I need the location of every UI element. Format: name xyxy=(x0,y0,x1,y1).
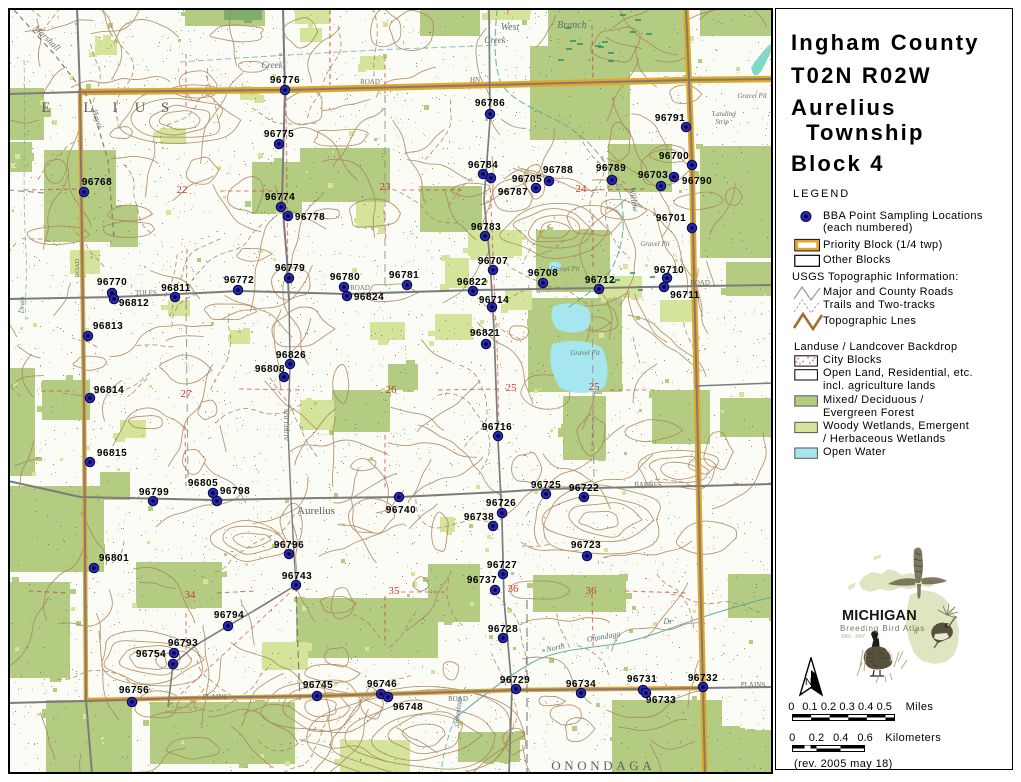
svg-text:G: G xyxy=(629,758,638,773)
svg-text:96791: 96791 xyxy=(655,113,685,124)
svg-text:Dr: Dr xyxy=(663,617,674,626)
svg-text:96778: 96778 xyxy=(295,212,325,223)
svg-text:96775: 96775 xyxy=(264,129,294,140)
svg-text:96770: 96770 xyxy=(97,277,127,288)
svg-text:96712: 96712 xyxy=(585,275,615,286)
svg-text:TOLES: TOLES xyxy=(135,289,157,297)
svg-text:96780: 96780 xyxy=(330,272,360,283)
svg-text:96783: 96783 xyxy=(471,222,501,233)
svg-text:BARNES: BARNES xyxy=(634,481,662,489)
svg-text:96748: 96748 xyxy=(393,702,423,713)
svg-text:96821: 96821 xyxy=(470,328,500,339)
svg-text:96822: 96822 xyxy=(457,277,487,288)
svg-text:96801: 96801 xyxy=(99,553,129,564)
svg-text:96813: 96813 xyxy=(93,321,123,332)
svg-text:96779: 96779 xyxy=(275,263,305,274)
svg-text:96754: 96754 xyxy=(136,649,166,660)
svg-text:N: N xyxy=(590,758,600,773)
svg-text:O: O xyxy=(577,758,586,773)
svg-text:96727: 96727 xyxy=(487,560,517,571)
svg-text:24: 24 xyxy=(576,183,588,195)
svg-text:96734: 96734 xyxy=(566,679,596,690)
svg-text:D: D xyxy=(603,758,612,773)
svg-text:96711: 96711 xyxy=(670,290,700,301)
svg-text:27: 27 xyxy=(181,388,193,400)
svg-text:PLAINS: PLAINS xyxy=(203,693,228,701)
svg-text:96745: 96745 xyxy=(303,680,333,691)
svg-text:HN: HN xyxy=(470,76,480,84)
svg-text:Creek: Creek xyxy=(261,60,283,70)
svg-text:96799: 96799 xyxy=(139,487,169,498)
svg-text:25: 25 xyxy=(589,381,601,393)
svg-text:N: N xyxy=(805,677,812,688)
svg-text:96707: 96707 xyxy=(478,256,508,267)
svg-text:96726: 96726 xyxy=(486,498,516,509)
svg-text:Drain: Drain xyxy=(18,296,27,314)
svg-text:96796: 96796 xyxy=(274,540,304,551)
svg-text:96805: 96805 xyxy=(188,478,218,489)
svg-text:Creek: Creek xyxy=(484,35,506,45)
svg-text:96793: 96793 xyxy=(168,638,198,649)
svg-text:96725: 96725 xyxy=(531,480,561,491)
svg-text:96746: 96746 xyxy=(367,679,397,690)
svg-text:96723: 96723 xyxy=(571,540,601,551)
svg-text:96776: 96776 xyxy=(270,75,300,86)
svg-text:Branch: Branch xyxy=(557,20,586,31)
svg-text:96772: 96772 xyxy=(224,275,254,286)
svg-text:ROAD: ROAD xyxy=(74,258,81,277)
svg-text:96728: 96728 xyxy=(488,624,518,635)
svg-text:96787: 96787 xyxy=(498,187,528,198)
svg-text:96786: 96786 xyxy=(475,98,505,109)
svg-text:ROAD: ROAD xyxy=(690,279,710,287)
svg-text:O: O xyxy=(551,758,560,773)
svg-text:96700: 96700 xyxy=(659,151,689,162)
svg-text:S: S xyxy=(161,100,169,116)
svg-text:II: II xyxy=(914,629,918,636)
svg-text:26: 26 xyxy=(386,384,398,396)
svg-text:36: 36 xyxy=(586,585,598,597)
svg-text:96722: 96722 xyxy=(569,483,599,494)
svg-text:96784: 96784 xyxy=(468,160,498,171)
svg-text:Landing: Landing xyxy=(711,110,736,118)
svg-text:96716: 96716 xyxy=(482,422,512,433)
svg-text:96732: 96732 xyxy=(688,673,718,684)
svg-text:23: 23 xyxy=(380,181,392,193)
svg-text:96737: 96737 xyxy=(467,575,497,586)
svg-text:Breeding Bird Atlas: Breeding Bird Atlas xyxy=(840,624,925,633)
svg-text:PLAINS: PLAINS xyxy=(741,681,766,689)
svg-text:Gravel Pit: Gravel Pit xyxy=(640,240,670,248)
svg-text:96733: 96733 xyxy=(646,695,676,706)
svg-text:E: E xyxy=(41,100,50,116)
svg-text:96774: 96774 xyxy=(265,192,295,203)
svg-text:96714: 96714 xyxy=(479,295,509,306)
svg-text:96812: 96812 xyxy=(119,298,149,309)
svg-text:N: N xyxy=(564,758,574,773)
svg-text:96768: 96768 xyxy=(82,177,112,188)
svg-text:36: 36 xyxy=(508,583,520,595)
svg-text:96756: 96756 xyxy=(119,685,149,696)
svg-text:96740: 96740 xyxy=(386,505,416,516)
svg-text:ROAD: ROAD xyxy=(350,284,370,292)
svg-text:2002 - 2007: 2002 - 2007 xyxy=(841,634,866,639)
svg-text:96826: 96826 xyxy=(276,350,306,361)
svg-text:96705: 96705 xyxy=(512,174,542,185)
svg-text:96798: 96798 xyxy=(220,486,250,497)
svg-text:96701: 96701 xyxy=(656,213,686,224)
svg-text:I: I xyxy=(113,100,118,116)
svg-text:96794: 96794 xyxy=(214,610,244,621)
svg-text:96708: 96708 xyxy=(528,268,558,279)
svg-text:96781: 96781 xyxy=(389,270,419,281)
svg-text:Aurelius: Aurelius xyxy=(297,505,335,517)
svg-text:96729: 96729 xyxy=(500,675,530,686)
svg-text:96789: 96789 xyxy=(596,163,626,174)
svg-text:96808: 96808 xyxy=(255,364,285,375)
svg-text:U: U xyxy=(135,100,146,116)
svg-text:A: A xyxy=(616,758,626,773)
svg-text:34: 34 xyxy=(185,589,197,601)
svg-text:96824: 96824 xyxy=(354,292,384,303)
svg-text:25: 25 xyxy=(506,382,518,394)
svg-text:MICHIGAN: MICHIGAN xyxy=(842,608,917,624)
svg-text:96710: 96710 xyxy=(654,265,684,276)
svg-text:96811: 96811 xyxy=(161,283,191,294)
svg-text:Gravel Pit: Gravel Pit xyxy=(737,92,767,100)
svg-text:AURELIUS: AURELIUS xyxy=(283,409,290,442)
svg-text:96743: 96743 xyxy=(282,571,312,582)
svg-text:A: A xyxy=(642,758,652,773)
svg-text:96703: 96703 xyxy=(638,170,668,181)
svg-text:Strip: Strip xyxy=(715,118,729,126)
svg-text:ROAD: ROAD xyxy=(360,78,380,86)
svg-text:West: West xyxy=(501,22,520,33)
svg-text:96815: 96815 xyxy=(97,448,127,459)
svg-text:Gravel Pit: Gravel Pit xyxy=(570,349,600,357)
svg-text:96814: 96814 xyxy=(94,385,124,396)
svg-text:35: 35 xyxy=(389,585,401,597)
svg-text:22: 22 xyxy=(177,184,188,196)
svg-text:96788: 96788 xyxy=(543,165,573,176)
svg-text:96731: 96731 xyxy=(627,674,657,685)
svg-text:96738: 96738 xyxy=(464,512,494,523)
svg-text:96790: 96790 xyxy=(682,176,712,187)
